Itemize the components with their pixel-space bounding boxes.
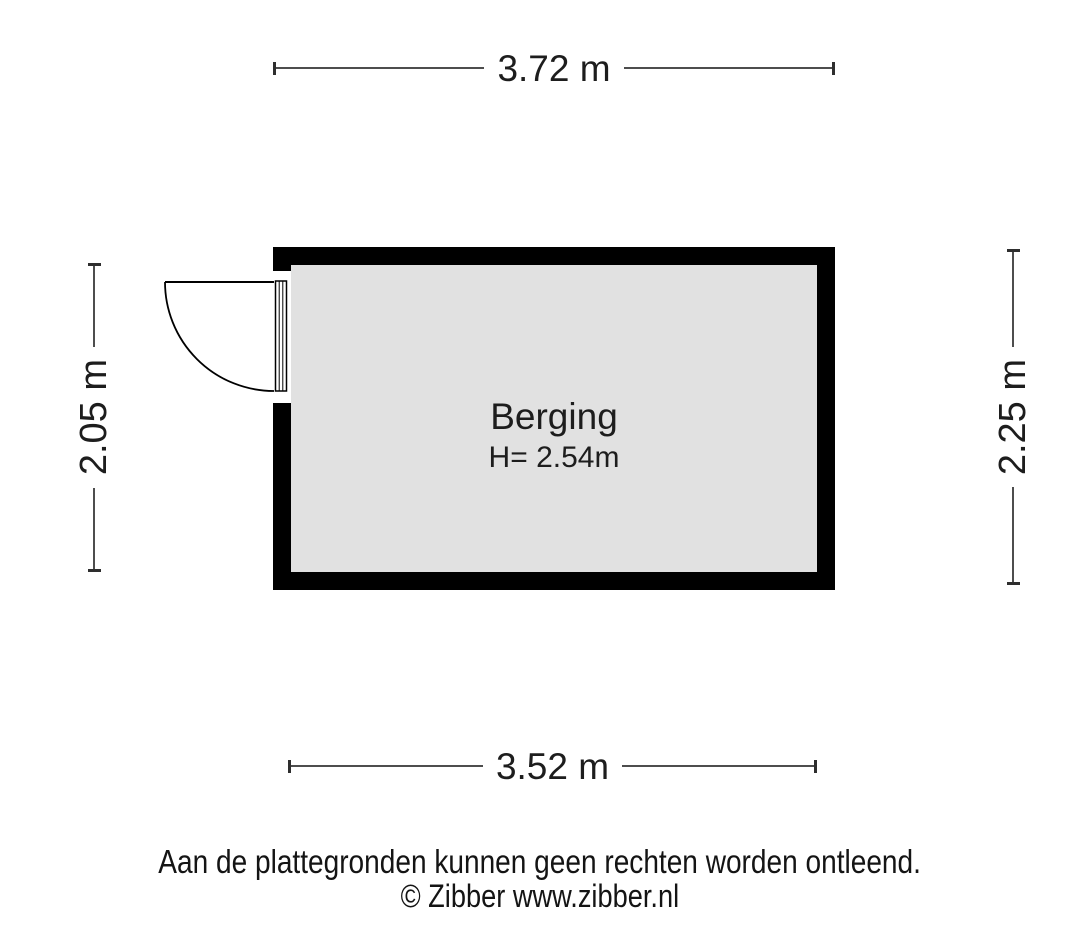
room-name: Berging — [291, 394, 817, 439]
dimension-line — [93, 488, 95, 569]
disclaimer-text: Aan de plattegronden kunnen geen rechten… — [0, 845, 1080, 879]
floorplan-canvas: 3.72 m 3.52 m 2.05 m 2.25 m Berging H= 2… — [0, 0, 1080, 944]
dimension-label-top: 3.72 m — [484, 50, 623, 87]
room-label: Berging H= 2.54m — [291, 394, 817, 477]
dimension-line — [1012, 252, 1014, 347]
door-frame — [276, 281, 287, 391]
dimension-top: 3.72 m — [273, 55, 835, 81]
room-height-label: H= 2.54m — [291, 439, 817, 477]
dimension-line — [622, 765, 814, 767]
dimension-tick — [814, 760, 817, 773]
dimension-line — [276, 67, 484, 69]
dimension-left: 2.05 m — [86, 263, 102, 572]
dimension-line — [291, 765, 483, 767]
door-swing-arc — [165, 282, 274, 391]
dimension-line — [624, 67, 832, 69]
dimension-line — [1012, 487, 1014, 582]
dimension-bottom: 3.52 m — [288, 753, 817, 779]
dimension-label-right: 2.25 m — [994, 347, 1032, 487]
dimension-tick — [88, 569, 101, 572]
dimension-label-left: 2.05 m — [75, 347, 113, 487]
dimension-label-bottom: 3.52 m — [483, 748, 622, 785]
footer: Aan de plattegronden kunnen geen rechten… — [0, 845, 1080, 913]
dimension-tick — [1007, 582, 1020, 585]
dimension-tick — [832, 62, 835, 75]
copyright-text: © Zibber www.zibber.nl — [0, 879, 1080, 913]
dimension-right: 2.25 m — [1005, 249, 1021, 585]
dimension-line — [93, 266, 95, 347]
